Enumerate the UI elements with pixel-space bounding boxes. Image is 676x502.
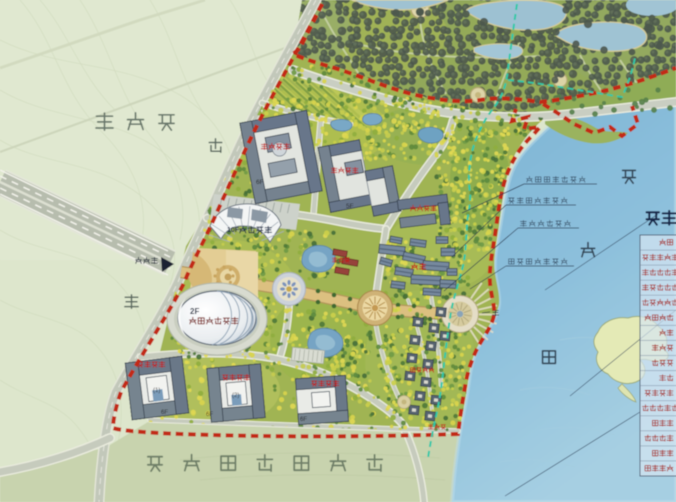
svg-text:6F: 6F (256, 179, 264, 186)
svg-text:10F: 10F (227, 227, 240, 234)
svg-text:6F: 6F (300, 417, 307, 423)
svg-text:6F: 6F (161, 410, 168, 416)
svg-text:2F: 2F (190, 307, 199, 316)
svg-text:(1): (1) (153, 388, 160, 394)
svg-text:5F: 5F (346, 203, 354, 210)
svg-text:(2): (2) (232, 393, 239, 399)
svg-text:6F: 6F (206, 412, 213, 418)
